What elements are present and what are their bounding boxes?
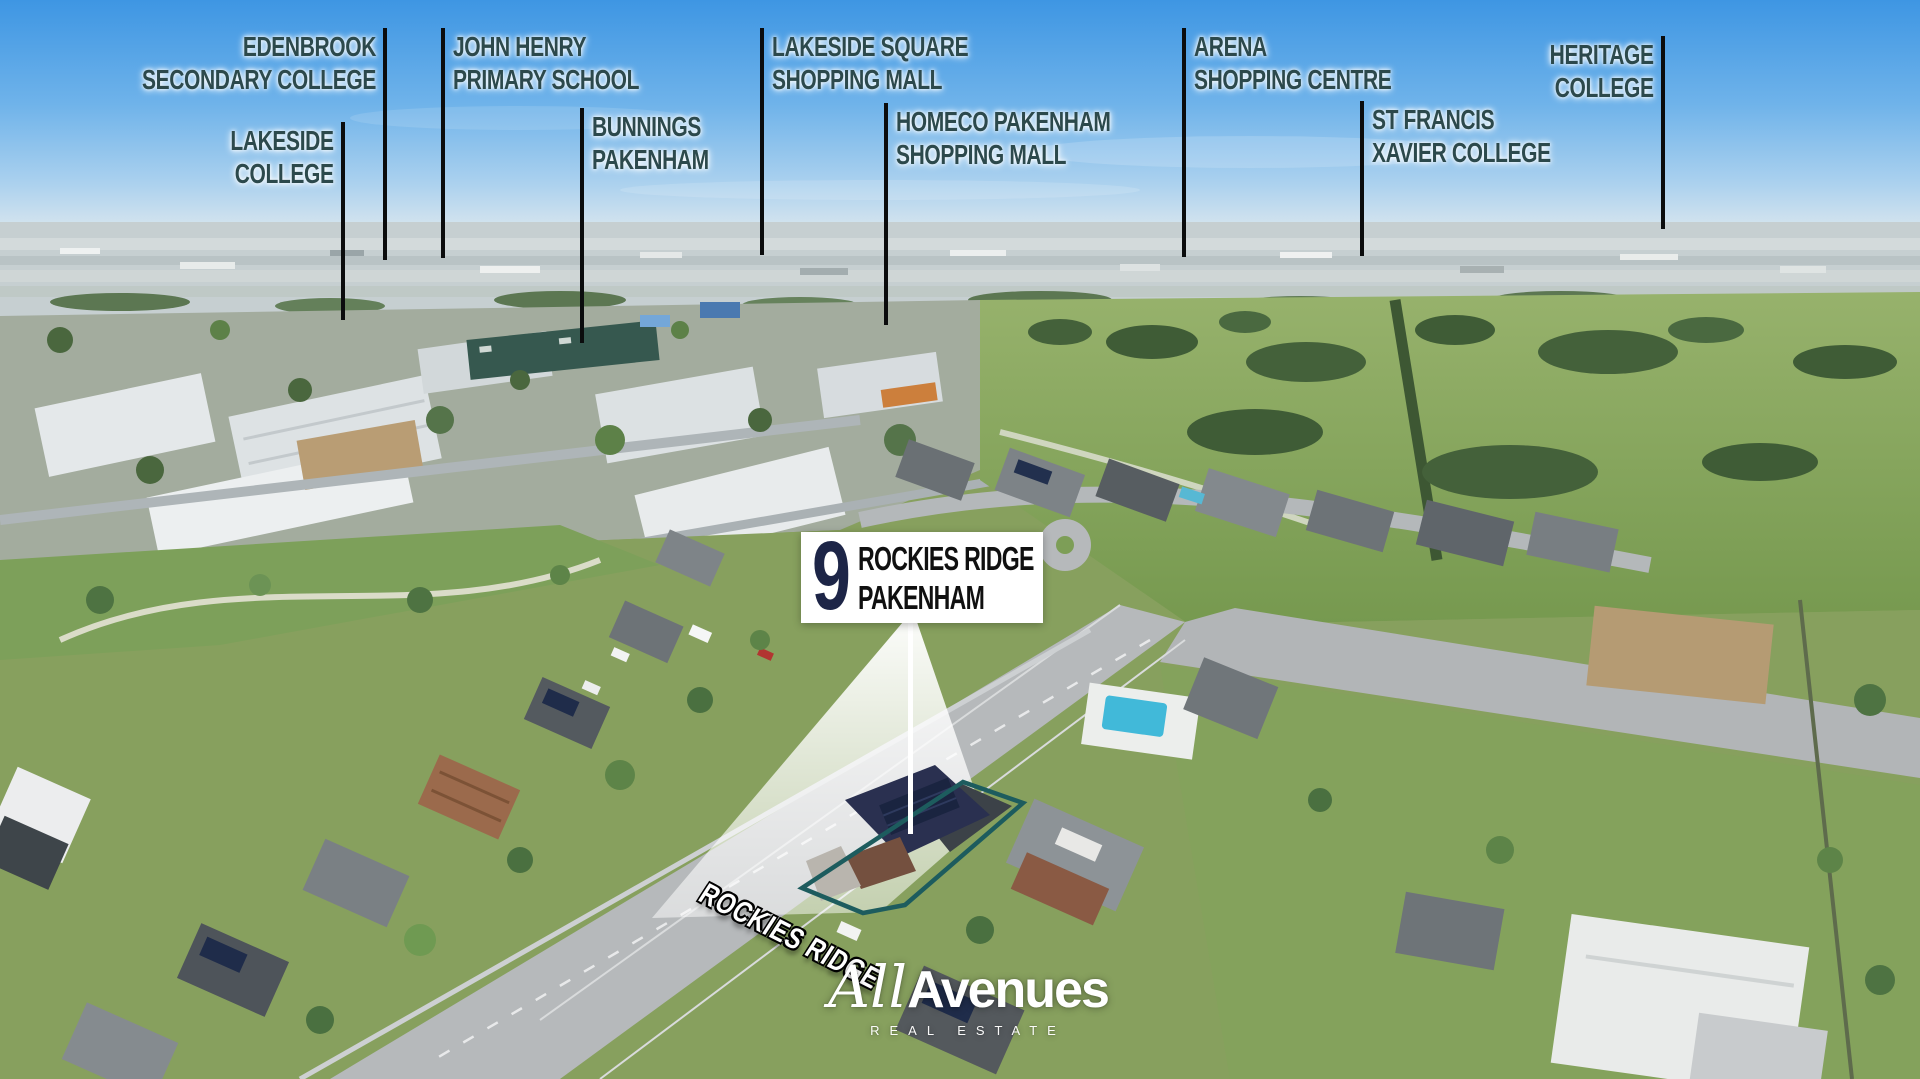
property-suburb: PAKENHAM <box>858 578 1034 617</box>
landmark-label-john-henry: JOHN HENRYPRIMARY SCHOOL <box>453 30 701 96</box>
landmark-label-arena: ARENASHOPPING CENTRE <box>1194 30 1457 96</box>
landmark-label-lakeside-square: LAKESIDE SQUARESHOPPING MALL <box>772 30 1034 96</box>
pointer-line-arena <box>1182 28 1186 257</box>
landmark-label-bunnings: BUNNINGSPAKENHAM <box>592 110 748 176</box>
pointer-line-homeco <box>884 103 888 325</box>
landmark-label-st-francis: ST FRANCISXAVIER COLLEGE <box>1372 103 1610 169</box>
pointer-line-edenbrook <box>383 28 387 260</box>
aerial-marketing-image: EDENBROOKSECONDARY COLLEGELAKESIDECOLLEG… <box>0 0 1920 1079</box>
pointer-line-bunnings <box>580 108 584 343</box>
pointer-line-heritage <box>1661 36 1665 229</box>
agency-logo: AllAvenues REAL ESTATE <box>818 960 1118 1038</box>
landmark-label-edenbrook: EDENBROOKSECONDARY COLLEGE <box>64 30 376 96</box>
landmark-label-heritage: HERITAGECOLLEGE <box>1515 38 1654 104</box>
landmark-label-homeco: HOMECO PAKENHAMSHOPPING MALL <box>896 105 1182 171</box>
property-number: 9 <box>812 534 851 618</box>
property-street: ROCKIES RIDGE <box>858 539 1034 578</box>
logo-word-avenues: Avenues <box>907 961 1108 1019</box>
pointer-line-lakeside-square <box>760 28 764 255</box>
pointer-line-lakeside-college <box>341 122 345 320</box>
pointer-line-st-francis <box>1360 101 1364 256</box>
landmark-label-lakeside-college: LAKESIDECOLLEGE <box>196 124 334 190</box>
logo-tagline: REAL ESTATE <box>818 1023 1118 1038</box>
logo-word-all: All <box>828 953 907 1021</box>
property-address: ROCKIES RIDGE PAKENHAM <box>858 539 1034 617</box>
property-callout: 9 ROCKIES RIDGE PAKENHAM <box>801 532 1043 623</box>
pointer-line-john-henry <box>441 28 445 258</box>
